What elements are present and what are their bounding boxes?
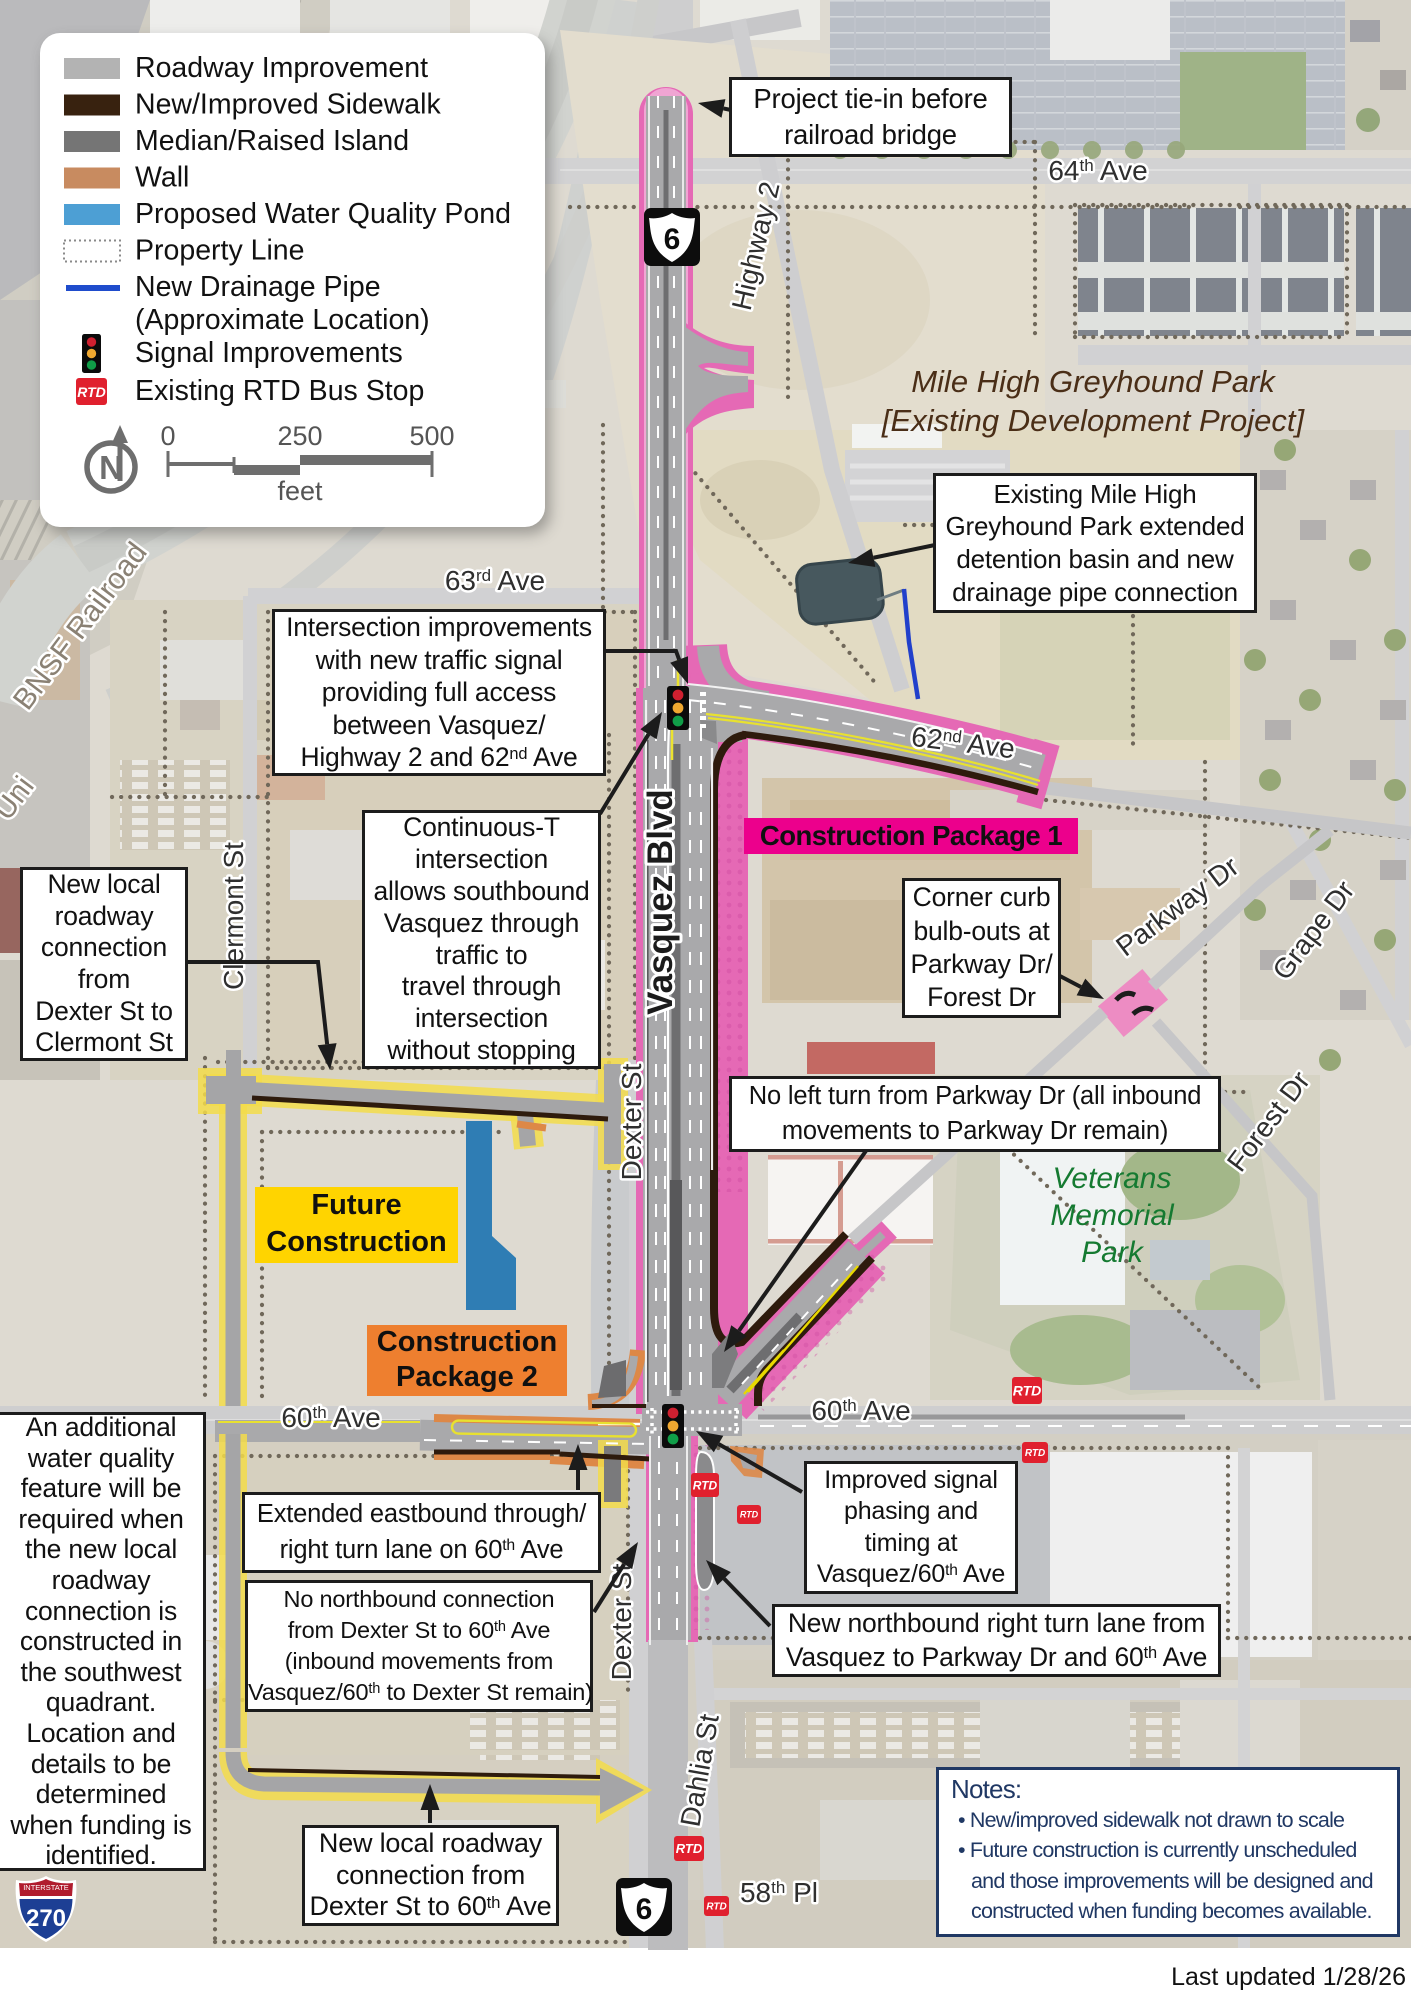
svg-text:RTD: RTD bbox=[77, 384, 106, 400]
svg-text:Vasquez Blvd: Vasquez Blvd bbox=[641, 789, 680, 1015]
svg-text:Park: Park bbox=[1081, 1236, 1145, 1269]
svg-text:6: 6 bbox=[664, 223, 681, 256]
svg-text:60th Ave: 60th Ave bbox=[811, 1395, 910, 1426]
svg-text:Dexter St: Dexter St bbox=[616, 1063, 647, 1180]
svg-text:INTERSTATE: INTERSTATE bbox=[23, 1883, 69, 1892]
svg-text:RTD: RTD bbox=[706, 1902, 726, 1913]
svg-text:Property Line: Property Line bbox=[135, 235, 305, 267]
svg-text:250: 250 bbox=[277, 421, 322, 451]
svg-text:feet: feet bbox=[277, 476, 323, 506]
svg-text:63rd Ave: 63rd Ave bbox=[445, 565, 545, 596]
svg-text:RTD: RTD bbox=[740, 1510, 759, 1520]
svg-text:Wall: Wall bbox=[135, 162, 189, 194]
svg-text:(Approximate Location): (Approximate Location) bbox=[135, 304, 430, 336]
svg-text:500: 500 bbox=[409, 421, 454, 451]
svg-text:Signal Improvements: Signal Improvements bbox=[135, 337, 403, 369]
svg-text:60th Ave: 60th Ave bbox=[281, 1402, 380, 1433]
svg-text:0: 0 bbox=[160, 421, 175, 451]
svg-text:RTD: RTD bbox=[693, 1478, 718, 1492]
svg-text:Median/Raised Island: Median/Raised Island bbox=[135, 125, 409, 157]
svg-text:RTD: RTD bbox=[676, 1841, 703, 1856]
svg-text:Mile High Greyhound Park: Mile High Greyhound Park bbox=[911, 364, 1276, 399]
svg-text:RTD: RTD bbox=[1025, 1448, 1045, 1459]
svg-text:270: 270 bbox=[26, 1905, 66, 1932]
svg-text:New Drainage Pipe: New Drainage Pipe bbox=[135, 271, 381, 303]
svg-text:Existing RTD Bus Stop: Existing RTD Bus Stop bbox=[135, 375, 424, 407]
svg-text:RTD: RTD bbox=[1013, 1383, 1042, 1399]
svg-text:Memorial: Memorial bbox=[1050, 1199, 1175, 1232]
svg-text:Roadway Improvement: Roadway Improvement bbox=[135, 52, 428, 84]
svg-text:Proposed Water Quality Pond: Proposed Water Quality Pond bbox=[135, 198, 511, 230]
svg-text:Dexter St: Dexter St bbox=[606, 1563, 637, 1680]
svg-text:Veterans: Veterans bbox=[1053, 1162, 1172, 1195]
svg-text:64th Ave: 64th Ave bbox=[1048, 155, 1147, 186]
svg-text:Clermont St: Clermont St bbox=[218, 842, 249, 990]
svg-text:[Existing Development Project]: [Existing Development Project] bbox=[881, 403, 1306, 438]
svg-text:6: 6 bbox=[636, 1893, 653, 1926]
svg-text:New/Improved Sidewalk: New/Improved Sidewalk bbox=[135, 89, 441, 121]
